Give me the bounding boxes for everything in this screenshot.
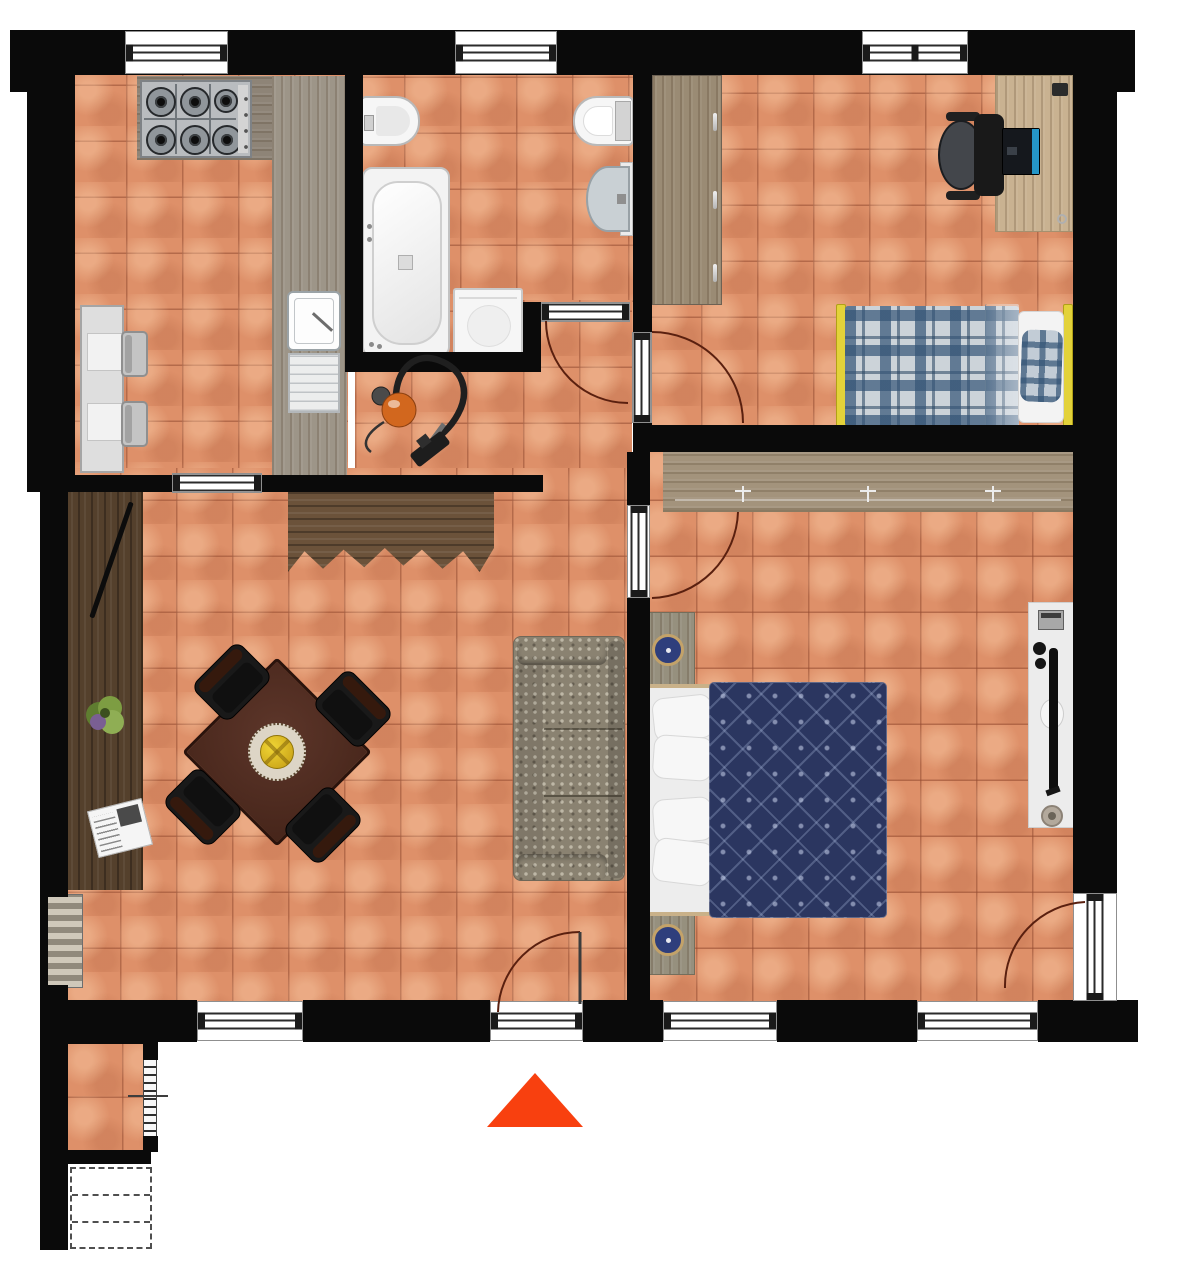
frame-cap — [254, 475, 261, 492]
door-bedroom — [632, 332, 652, 423]
window-bathroom — [455, 31, 557, 74]
frame-cap — [456, 44, 463, 61]
frame-cap — [630, 590, 647, 597]
glazing — [667, 1013, 773, 1030]
glazing — [921, 1013, 1034, 1030]
glazing — [1087, 897, 1104, 997]
frame-cap — [549, 44, 556, 61]
frame-cap — [1087, 993, 1104, 1000]
frame-cap — [630, 506, 647, 513]
glazing — [494, 1013, 579, 1030]
frame-cap — [542, 304, 549, 321]
frame-cap — [1087, 894, 1104, 901]
door-entrance — [490, 1001, 583, 1041]
glazing — [545, 304, 626, 321]
door-master-bedroom — [627, 505, 650, 598]
window-master-south-left — [663, 1001, 777, 1041]
frame-cap — [220, 44, 227, 61]
glazing — [129, 44, 224, 61]
frame-cap — [1030, 1013, 1037, 1030]
window-master-south-right — [917, 1001, 1038, 1041]
window-living-south — [197, 1001, 303, 1041]
frame-cap — [622, 304, 629, 321]
frame-cap — [491, 1013, 498, 1030]
frame-cap — [198, 1013, 205, 1030]
frame-cap — [295, 1013, 302, 1030]
frame-cap — [918, 1013, 925, 1030]
floor-plan — [0, 0, 1184, 1280]
opening-kitchen-living — [172, 473, 262, 493]
frame-cap — [960, 44, 967, 61]
window-bedroom — [862, 31, 968, 74]
door-master-balcony — [1073, 893, 1117, 1001]
frame-cap — [634, 415, 651, 422]
frame-cap — [863, 44, 870, 61]
frame-cap — [769, 1013, 776, 1030]
frame-cap — [634, 333, 651, 340]
glazing — [201, 1013, 299, 1030]
frame-cap — [912, 44, 919, 61]
glazing — [459, 44, 553, 61]
openings-layer — [0, 0, 1184, 1280]
frame-cap — [126, 44, 133, 61]
frame-cap — [575, 1013, 582, 1030]
frame-cap — [664, 1013, 671, 1030]
frame-cap — [173, 475, 180, 492]
glazing — [630, 509, 647, 594]
glazing — [176, 475, 258, 492]
glazing — [634, 336, 651, 419]
window-kitchen — [125, 31, 228, 74]
door-bathroom — [541, 302, 630, 322]
